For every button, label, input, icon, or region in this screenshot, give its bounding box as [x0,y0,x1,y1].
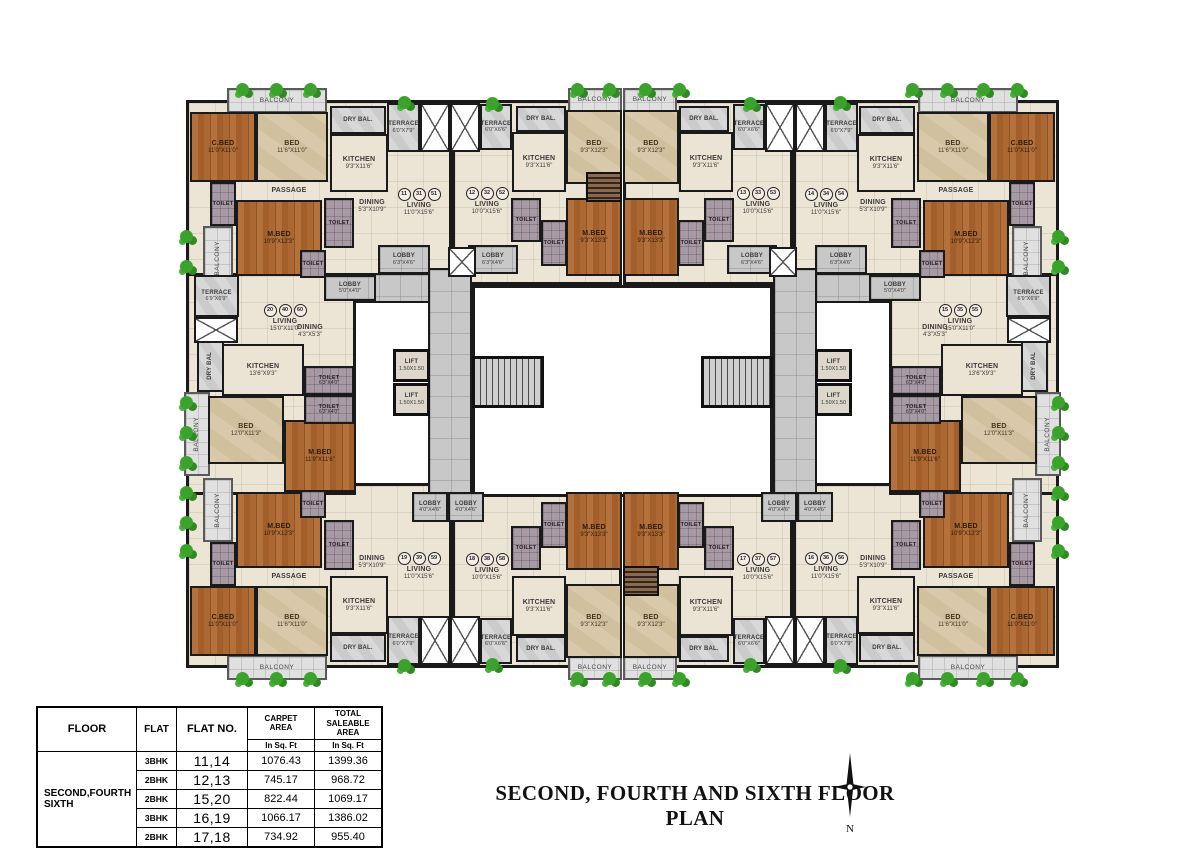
room-dimensions: 6'3"X4'0" [319,381,339,387]
cell-saleable: 1069.17 [315,789,383,808]
room-bed: BED11'6"X11'0" [256,586,328,656]
plant-icon [603,83,616,96]
room-living: 143454LIVING11'0"X15'6" [795,152,857,252]
room-dimensions: 15'0"X11'0" [270,326,300,333]
cell-flat: 2BHK [137,827,177,847]
room-dimensions: 4'0"X4'6" [768,507,790,513]
room-terrace: TERRACE6'0"X7'9" [387,103,420,152]
room-dimensions: 6'9"X6'9" [1018,296,1040,302]
room-bed: BED11'6"X11'0" [256,112,328,182]
room-balcony: BALCONY [203,478,233,542]
plant-icon [180,544,193,557]
flat-number-circle: 11 [398,188,411,201]
room-label: BED [284,140,299,148]
room-kitchen: KITCHEN9'3"X11'6" [857,134,915,192]
room-label: M.BED [639,524,663,532]
room-balcony: BALCONY [1012,478,1042,542]
room-dimensions: 9'3"X13'3" [637,238,664,245]
room-dry-bal: DRY BAL [197,340,224,392]
room-label: BALCONY [1023,241,1030,276]
flat-number-circle: 36 [820,552,833,565]
flat-number-circle: 54 [835,188,848,201]
room-label: LOBBY [393,253,415,260]
flat-number-circle: 14 [805,188,818,201]
room-c-bed: C.BED11'0"X11'0" [989,586,1055,656]
room-terrace: TERRACE6'9"X6'9" [1006,275,1051,317]
room-living: 183858LIVING10'0"X15'6" [455,516,519,618]
room-dimensions: 6'3"X4'6" [830,260,852,266]
flat-number-circle: 12 [466,187,479,200]
room-dimensions: 11'0"X11'0" [208,148,238,155]
flat-number-circle: 55 [969,304,982,317]
room-dimensions: 11'9"X11'6" [305,457,335,464]
tile [428,268,472,505]
room-label: BALCONY [951,664,986,671]
room-label: KITCHEN [523,155,556,163]
room-dimensions: 1.50X1.50 [399,366,424,372]
cell-flat: 3BHK [137,808,177,827]
flat-number-circle: 40 [279,304,292,317]
room-toilet: TOILET [541,502,567,548]
north-arrow: N [832,752,868,835]
room-dimensions: 11'6"X11'0" [277,622,307,629]
room-dimensions: 4'0"X4'6" [419,507,441,513]
room-terrace: TERRACE6'0"X6'6" [480,104,512,150]
room-dimensions: 6'3"X4'0" [906,381,926,387]
plant-icon [486,97,499,110]
room-label: C.BED [1011,614,1034,622]
shaft [765,616,795,665]
plant-icon [834,659,847,672]
room-dimensions: 6'0"X7'9" [393,128,415,134]
room-terrace: TERRACE6'0"X7'9" [825,616,858,665]
flat-number-circle: 20 [264,304,277,317]
room-label: KITCHEN [247,363,280,371]
plant-icon [398,659,411,672]
room-passage: PASSAGE [256,568,322,586]
room-label: LIVING [407,566,432,574]
flat-numbers: 123252 [465,187,510,200]
room-dimensions: 11'0"X15'6" [404,210,434,217]
room-label: BALCONY [214,241,221,276]
room-label: LOBBY [482,253,504,260]
header-carpet-area: CARPET AREA [248,707,315,739]
plant-icon [1052,544,1065,557]
room-dry-bal-: DRY BAL. [679,106,729,132]
table-row: SECOND,FOURTH SIXTH3BHK11,141076.431399.… [37,751,382,770]
room-label: M.BED [308,449,332,457]
flat-number-circle: 53 [767,187,780,200]
room-label: TOILET [1012,201,1033,207]
room-label: LIVING [746,567,771,575]
room-label: M.BED [639,230,663,238]
cell-carpet: 734.92 [248,827,315,847]
area-table-body: SECOND,FOURTH SIXTH3BHK11,141076.431399.… [37,751,382,847]
plant-icon [1052,486,1065,499]
cell-saleable: 1399.36 [315,751,383,770]
room-dimensions: 9'3"X13'3" [580,238,607,245]
room-living: 204060LIVING15'0"X11'0" [237,283,333,353]
room-balcony: BALCONY [918,655,1018,680]
room-label: BED [586,614,601,622]
plant-icon [1052,516,1065,529]
shaft [795,616,825,665]
room-toilet: TOILET [300,490,326,518]
room-terrace: TERRACE6'0"X6'6" [480,618,512,664]
room-label: TOILET [922,501,943,507]
room-m-bed: M.BED9'3"X13'3" [566,492,622,570]
room-dry-bal: DRY BAL [1021,340,1048,392]
cell-flat_no: 15,20 [177,789,248,808]
room-label: LIVING [407,202,432,210]
room-dimensions: 9'3"X11'6" [526,607,553,614]
plant-icon [1011,672,1024,685]
room-dimensions: 4'0"X4'6" [455,507,477,513]
room-label: BALCONY [260,97,295,104]
room-kitchen: KITCHEN9'3"X11'6" [679,576,733,636]
room-toilet: TOILET [919,490,945,518]
header-floor: FLOOR [37,707,137,751]
plant-icon [1052,230,1065,243]
room-dimensions: 9'3"X11'6" [346,606,373,613]
plant-icon [180,396,193,409]
flat-number-circle: 60 [294,304,307,317]
room-dimensions: 6'0"X7'9" [393,641,415,647]
room-dry-bal-: DRY BAL. [679,636,729,662]
room-label: DRY BAL. [526,646,556,653]
room-label: TERRACE [481,121,511,128]
room-label: LOBBY [884,282,906,289]
shaft [1007,317,1051,343]
room-label: DINING [860,199,886,207]
room-dimensions: 6'0"X6'6" [485,127,507,133]
plant-icon [304,672,317,685]
room-label: BALCONY [578,96,613,103]
plant-icon [603,672,616,685]
room-dimensions: 10'0"X15'6" [472,209,503,216]
plant-icon [941,83,954,96]
plant-icon [180,516,193,529]
room-dimensions: 9'3"X13'3" [637,532,664,539]
room-label: PASSAGE [938,187,973,195]
room-dimensions: 9'3"X13'3" [580,532,607,539]
room-dimensions: 9'3"X11'6" [346,164,373,171]
room-dimensions: 13'6"X9'3" [968,371,995,378]
cell-flat_no: 12,13 [177,770,248,789]
flat-number-circle: 15 [939,304,952,317]
room-label: KITCHEN [523,599,556,607]
room-dry-bal-: DRY BAL. [859,634,915,662]
room-dimensions: 5'3"X10'9" [859,207,886,214]
cell-saleable: 1386.02 [315,808,383,827]
room-dimensions: 6'0"X7'9" [831,128,853,134]
room-m-bed: M.BED9'3"X13'3" [566,198,622,276]
room-dimensions: 6'3"X4'6" [482,260,504,266]
room-label: KITCHEN [966,363,999,371]
room-label: LIVING [814,566,839,574]
plant-icon [180,230,193,243]
flat-numbers: 193959 [397,552,442,565]
compass-star-icon [832,752,868,822]
tile [773,268,817,505]
cell-saleable: 968.72 [315,770,383,789]
plant-icon [304,83,317,96]
room-label: BED [238,423,253,431]
room-lift: LIFT1.50X1.50 [815,349,852,382]
room-label: TERRACE [388,634,418,641]
room-toilet: TOILET6'3"X4'0" [891,366,941,395]
room-label: KITCHEN [870,598,903,606]
room-label: DRY BAL [1031,352,1038,380]
cell-saleable: 955.40 [315,827,383,847]
flat-number-circle: 37 [752,553,765,566]
room-dimensions: 9'3"X11'6" [526,163,553,170]
plant-icon [270,672,283,685]
plant-icon [834,96,847,109]
cell-carpet: 1066.17 [248,808,315,827]
cell-flat: 3BHK [137,751,177,770]
room-label: TOILET [213,201,234,207]
room-dimensions: 10'0"X15'6" [472,575,503,582]
room-toilet: TOILET [210,542,236,586]
room-label: LIFT [827,393,840,400]
room-toilet: TOILET6'3"X4'0" [891,395,941,424]
room-label: LIVING [948,318,973,326]
room-label: TOILET [681,240,702,246]
room-label: DRY BAL. [343,645,373,652]
shaft [420,103,450,152]
flat-numbers: 183858 [465,553,510,566]
flat-numbers: 133353 [736,187,781,200]
room-label: BED [991,423,1006,431]
room-label: BALCONY [633,664,668,671]
room-dimensions: 9'3"X11'6" [693,607,720,614]
room-toilet: TOILET [678,502,704,548]
room-dimensions: 6'3"X4'0" [319,410,339,416]
flat-number-circle: 57 [767,553,780,566]
room-label: LOBBY [804,501,826,508]
room-bed: BED11'6"X11'0" [917,586,989,656]
room-label: BALCONY [1044,417,1051,452]
room-dimensions: 1.50X1.50 [821,400,846,406]
room-label: BALCONY [214,493,221,528]
room-label: LOBBY [741,253,763,260]
room-living: 163656LIVING11'0"X15'6" [795,516,857,616]
plant-icon [486,658,499,671]
room-label: KITCHEN [690,155,723,163]
room-label: LOBBY [830,253,852,260]
room-label: BED [945,140,960,148]
room-dimensions: 12'0"X11'3" [231,431,261,438]
room-dimensions: 1.50X1.50 [821,366,846,372]
plant-icon [639,83,652,96]
room-dimensions: 11'6"X11'0" [938,148,968,155]
plant-icon [180,426,193,439]
room-lift: LIFT1.50X1.50 [393,383,430,416]
shaft [194,317,238,343]
room-label: DRY BAL [207,352,214,380]
flat-number-circle: 59 [428,552,441,565]
room-dimensions: 4'0"X4'6" [804,507,826,513]
header-saleable-area: TOTAL SALEABLE AREA [315,707,383,739]
header-flat: FLAT [137,707,177,751]
plant-icon [270,83,283,96]
plant-icon [906,672,919,685]
room-label: BALCONY [260,664,295,671]
room-dimensions: 1.50X1.50 [399,400,424,406]
room-label: C.BED [212,140,235,148]
room-label: DINING [860,555,886,563]
flat-number-circle: 33 [752,187,765,200]
cell-flat: 2BHK [137,770,177,789]
room-label: TERRACE [734,121,764,128]
flat-number-circle: 52 [496,187,509,200]
room-label: LIVING [814,202,839,210]
room-dimensions: 5'3"X10'9" [358,563,385,570]
floor-cell: SECOND,FOURTH SIXTH [37,751,137,847]
room-dimensions: 5'3"X10'9" [859,563,886,570]
room-dry-bal-: DRY BAL. [516,106,566,132]
room-label: KITCHEN [870,156,903,164]
room-label: BED [284,614,299,622]
room-living: 113151LIVING11'0"X15'6" [388,152,450,252]
room-toilet: TOILET [919,250,945,278]
room-label: PASSAGE [271,573,306,581]
cell-flat_no: 11,14 [177,751,248,770]
room-label: TOILET [213,561,234,567]
shaft [420,616,450,665]
flat-numbers: 153555 [938,304,983,317]
plant-icon [977,83,990,96]
flat-number-circle: 31 [413,188,426,201]
flat-number-circle: 17 [737,553,750,566]
room-label: BED [945,614,960,622]
cell-flat_no: 17,18 [177,827,248,847]
room-label: BALCONY [951,97,986,104]
room-toilet: TOILET6'3"X4'0" [304,366,354,395]
room-passage: PASSAGE [923,182,989,200]
room-toilet: TOILET [541,220,567,266]
room-dimensions: 6'3"X4'0" [906,410,926,416]
flat-numbers: 173757 [736,553,781,566]
room-dimensions: 9'3"X11'6" [873,606,900,613]
room-label: TOILET [544,522,565,528]
room-label: LIVING [746,201,771,209]
room-label: DRY BAL. [689,116,719,123]
flat-numbers: 113151 [397,188,442,201]
room-dimensions: 10'0"X15'6" [743,575,774,582]
room-label: TOILET [1012,561,1033,567]
room-label: C.BED [1011,140,1034,148]
room-label: BALCONY [578,664,613,671]
room-label: TOILET [544,240,565,246]
room-label: DINING [359,555,385,563]
room-label: DRY BAL. [872,117,902,124]
flat-number-circle: 38 [481,553,494,566]
room-dimensions: 11'6"X11'0" [938,622,968,629]
room-label: TERRACE [734,635,764,642]
room-kitchen: KITCHEN9'3"X11'6" [857,576,915,634]
flat-number-circle: 35 [954,304,967,317]
room-dimensions: 5'0"X4'0" [339,288,361,294]
room-dimensions: 6'0"X6'6" [738,127,760,133]
room-dimensions: 11'0"X15'6" [811,574,841,581]
room-label: TOILET [303,261,324,267]
room-dimensions: 11'0"X11'0" [1007,148,1037,155]
room-dimensions: 6'0"X7'9" [831,641,853,647]
room-label: DRY BAL. [343,117,373,124]
room-m-bed: M.BED9'3"X13'3" [623,492,679,570]
room-dimensions: 11'0"X15'6" [811,210,841,217]
room-dry-bal-: DRY BAL. [516,636,566,662]
plant-icon [1052,426,1065,439]
plant-icon [977,672,990,685]
floor-plan-page: LOBBY6'3"X4'6"LOBBY6'3"X4'6"LOBBY6'3"X4'… [0,0,1200,848]
room-bed: BED12'0"X11'3" [961,396,1037,464]
room-label: LOBBY [768,501,790,508]
stairs [701,356,773,408]
room-label: KITCHEN [690,599,723,607]
room-kitchen: KITCHEN9'3"X11'6" [330,576,388,634]
room-dry-bal-: DRY BAL. [330,106,386,134]
room-label: LIVING [475,201,500,209]
flat-number-circle: 56 [835,552,848,565]
flat-numbers: 163656 [804,552,849,565]
room-bed: BED11'6"X11'0" [917,112,989,182]
flat-number-circle: 58 [496,553,509,566]
flight [586,172,622,202]
shaft [450,103,480,152]
plant-icon [1052,456,1065,469]
room-label: PASSAGE [938,573,973,581]
plant-icon [236,672,249,685]
room-terrace: TERRACE6'0"X7'9" [387,616,420,665]
room-toilet: TOILET [1009,182,1035,226]
room-dimensions: 9'3"X11'6" [873,164,900,171]
room-lift: LIFT1.50X1.50 [815,383,852,416]
room-label: KITCHEN [343,156,376,164]
room-label: M.BED [267,523,291,531]
flat-number-circle: 13 [737,187,750,200]
room-label: C.BED [212,614,235,622]
room-label: LIVING [475,567,500,575]
room-living: 173757LIVING10'0"X15'6" [726,516,790,618]
shaft [765,103,795,152]
plant-icon [1011,83,1024,96]
stairs [472,356,544,408]
room-dimensions: 10'9"X12'3" [951,239,982,246]
cell-carpet: 1076.43 [248,751,315,770]
room-label: BALCONY [193,417,200,452]
floor-plan: LOBBY6'3"X4'6"LOBBY6'3"X4'6"LOBBY6'3"X4'… [0,0,1200,700]
room-bed: BED9'3"X12'3" [623,110,679,184]
plant-icon [744,658,757,671]
room-dimensions: 12'0"X11'3" [984,431,1014,438]
room-living: 123252LIVING10'0"X15'6" [455,150,519,252]
room-label: PASSAGE [271,187,306,195]
room-balcony: BALCONY [918,88,1018,113]
header-unit-saleable: In Sq. Ft [315,739,383,751]
room-bed: BED9'3"X12'3" [566,584,622,658]
room-label: TERRACE [201,290,231,297]
flat-number-circle: 51 [428,188,441,201]
room-kitchen: KITCHEN9'3"X11'6" [330,134,388,192]
room-label: TERRACE [481,635,511,642]
room-dimensions: 5'3"X10'9" [358,207,385,214]
plant-icon [1052,260,1065,273]
room-label: M.BED [582,230,606,238]
shaft [450,616,480,665]
